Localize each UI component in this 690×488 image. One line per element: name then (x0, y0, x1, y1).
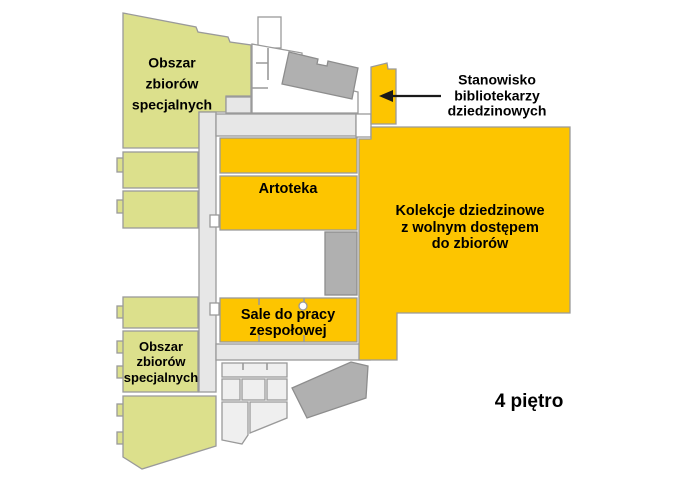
label-line: Stanowisko (448, 72, 547, 88)
subject-collections-label: Kolekcje dziedzinowe z wolnym dostępem d… (395, 203, 544, 253)
label-line: bibliotekarzy (448, 88, 547, 104)
artoteka-label: Artoteka (259, 181, 318, 197)
special-collections-room (123, 396, 216, 469)
small-room (222, 379, 240, 400)
label-line: Obszar (124, 339, 198, 354)
label-line: Sale do pracy (241, 308, 335, 324)
stairwell-bottom (292, 362, 368, 418)
label-line: 4 piętro (495, 391, 564, 413)
label-line: Artoteka (259, 181, 318, 197)
floor-title: 4 piętro (495, 391, 564, 413)
special-collections-room (123, 191, 198, 228)
small-room (250, 402, 287, 433)
label-line: specjalnych (124, 370, 198, 385)
label-line: do zbiorów (395, 236, 544, 253)
special-collections-bottom-label: Obszar zbiorów specjalnych (124, 339, 198, 385)
small-room (242, 379, 265, 400)
stairwell-middle (325, 232, 357, 295)
special-collections-room (123, 152, 198, 188)
subject-librarians-label: Stanowisko bibliotekarzy dziedzinowych (448, 72, 547, 119)
vertical-corridor (199, 112, 216, 392)
corner-room (226, 97, 251, 113)
label-line: Kolekcje dziedzinowe (395, 203, 544, 220)
label-line: zbiorów (124, 354, 198, 369)
label-line: zbiorów (132, 74, 212, 95)
small-room (267, 379, 287, 400)
lower-corridor (216, 344, 370, 360)
door-nook (210, 303, 219, 315)
small-rooms-bottom (222, 363, 287, 444)
small-room (222, 363, 287, 377)
label-line: dziedzinowych (448, 104, 547, 120)
label-line: specjalnych (132, 95, 212, 116)
label-line: zespołowej (241, 324, 335, 340)
door-nook (210, 215, 219, 227)
roof-access-room (258, 17, 281, 48)
special-collections-room (123, 297, 198, 328)
room-above-artoteka (220, 138, 357, 173)
floorplan-4th-floor: Obszar zbiorów specjalnych Artoteka Stan… (0, 0, 690, 488)
small-room (222, 402, 248, 444)
utility-room (356, 114, 371, 137)
special-collections-top-label: Obszar zbiorów specjalnych (132, 53, 212, 116)
floorplan-drawing (0, 0, 690, 488)
team-work-rooms-label: Sale do pracy zespołowej (241, 308, 335, 340)
upper-corridor (216, 114, 356, 136)
label-line: z wolnym dostępem (395, 220, 544, 237)
label-line: Obszar (132, 53, 212, 74)
